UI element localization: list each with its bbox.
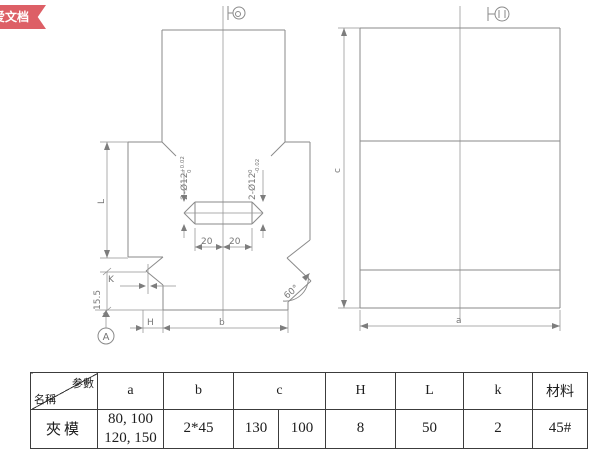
dim-L-label: L <box>97 199 107 204</box>
datum-A-label: A <box>103 332 110 343</box>
corner-cell: 参數 名稱 <box>31 373 98 410</box>
row-material-value: 45# <box>533 410 588 449</box>
hole-left-label: 2-Ø12 <box>179 172 190 200</box>
dim-K: K <box>108 264 176 294</box>
dim-H-label: H <box>147 318 154 328</box>
hole-right-tol-lower: -0.02 <box>255 159 261 173</box>
header-H: H <box>326 373 396 410</box>
header-c: c <box>234 373 326 410</box>
dim-155-label: 15.5 <box>93 290 103 310</box>
center-slot <box>184 202 263 224</box>
row-L-value: 50 <box>396 410 464 449</box>
hole-dim-right: 2-Ø12 0 -0.02 <box>247 159 266 238</box>
dim-L: L <box>97 142 128 258</box>
spec-table: 参數 名稱 a b c H L k 材料 夾模 80, 100 120, 150… <box>30 372 588 449</box>
dim-c-label: c <box>333 168 343 173</box>
slot-dim-right-label: 20 <box>229 237 241 247</box>
row-H-value: 8 <box>326 410 396 449</box>
row-k-value: 2 <box>464 410 533 449</box>
row-b-value: 2*45 <box>164 410 234 449</box>
datum-A: A <box>98 310 114 344</box>
slot-dim-left-label: 20 <box>201 237 213 247</box>
header-k: k <box>464 373 533 410</box>
dim-a-label: a <box>456 316 462 326</box>
row-a-value: 80, 100 120, 150 <box>98 410 164 449</box>
header-material: 材料 <box>533 373 588 410</box>
corner-param-label: 参數 <box>72 375 94 391</box>
header-a: a <box>98 373 164 410</box>
hole-right-label: 2-Ø12 <box>247 172 258 200</box>
row-a-line2: 120, 150 <box>98 429 163 448</box>
hole-left-tol-upper: +0.02 <box>180 156 186 173</box>
dim-155: 15.5 <box>93 268 163 314</box>
dim-b-label: b <box>219 318 225 328</box>
side-top-symbol <box>488 7 509 21</box>
dim-angle-label: 60° <box>283 283 302 301</box>
front-view-outline <box>128 30 311 310</box>
row-a-line1: 80, 100 <box>98 410 163 429</box>
row-part-name: 夾模 <box>31 410 98 449</box>
row-c1-value: 130 <box>234 410 279 449</box>
dim-c: c <box>333 28 360 308</box>
engineering-drawing: 2-Ø12 +0.02 0 2-Ø12 0 -0.02 20 <box>0 0 608 365</box>
header-b: b <box>164 373 234 410</box>
dim-H-b: H b <box>130 310 288 333</box>
corner-name-label: 名稱 <box>34 391 56 407</box>
row-c2-value: 100 <box>279 410 326 449</box>
hole-left-tol-lower: 0 <box>187 169 193 173</box>
hole-dim-left: 2-Ø12 +0.02 0 <box>179 156 193 238</box>
slot-spacing-dim: 20 20 <box>195 228 252 251</box>
front-top-symbol <box>228 6 245 20</box>
header-L: L <box>396 373 464 410</box>
document-page: 爱文档 <box>0 0 608 453</box>
dim-K-label: K <box>108 275 115 285</box>
dim-angle-60: 60° <box>283 273 310 301</box>
hole-right-tol-upper: 0 <box>248 169 254 173</box>
